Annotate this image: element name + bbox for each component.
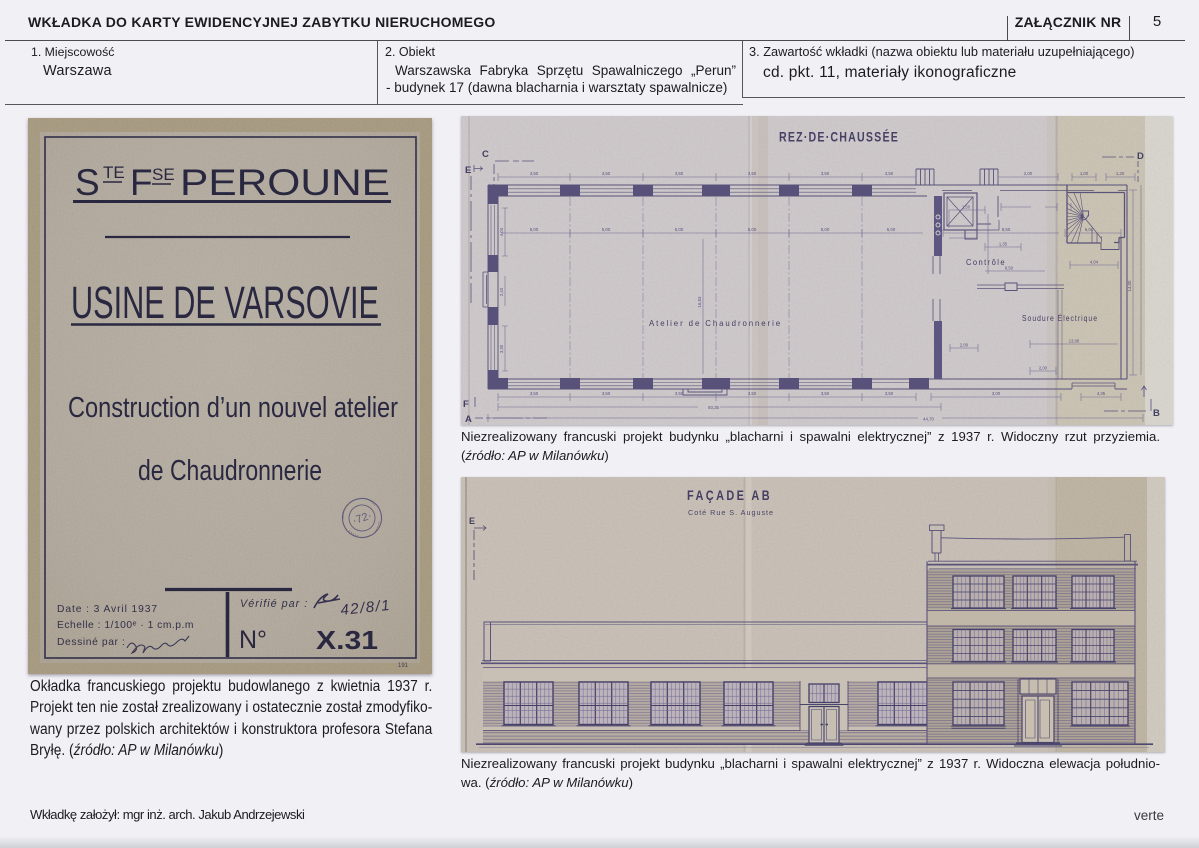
svg-text:PEROUNE: PEROUNE [180,162,390,203]
svg-text:3,50: 3,50 [530,391,539,396]
svg-text:D: D [1137,151,1144,162]
svg-text:4,04: 4,04 [499,227,504,236]
svg-text:3,30: 3,30 [499,344,504,353]
svg-text:5,00: 5,00 [887,227,896,232]
svg-text:FAÇADE AB: FAÇADE AB [687,488,772,503]
svg-text:E: E [465,165,471,176]
svg-text:F: F [463,399,469,410]
svg-text:3,50: 3,50 [602,391,611,396]
svg-text:191: 191 [398,663,409,669]
svg-text:1,50: 1,50 [962,205,971,210]
svg-text:5,00: 5,00 [675,227,684,232]
svg-text:3,50: 3,50 [675,171,684,176]
svg-text:3,50: 3,50 [675,391,684,396]
svg-text:3,50: 3,50 [885,391,894,396]
svg-text:1,35: 1,35 [999,242,1008,247]
svg-text:TE: TE [103,163,125,182]
svg-text:3,50: 3,50 [602,171,611,176]
svg-text:2,00: 2,00 [1039,366,1048,371]
svg-text:E: E [469,516,475,526]
svg-text:16,53: 16,53 [697,296,702,308]
svg-text:A: A [465,414,472,425]
svg-text:2,40: 2,40 [499,287,504,296]
svg-text:3,50: 3,50 [885,171,894,176]
svg-text:SE: SE [152,165,175,184]
svg-text:USINE DE VARSOVIE: USINE DE VARSOVIE [71,277,379,328]
svg-text:S: S [75,162,100,203]
svg-text:4,35: 4,35 [1097,391,1106,396]
svg-text:Coté Rue S. Auguste: Coté Rue S. Auguste [688,508,774,517]
svg-text:de Chaudronnerie: de Chaudronnerie [138,455,322,487]
svg-text:5,00: 5,00 [821,227,830,232]
svg-text:3,50: 3,50 [821,171,830,176]
svg-text:N°: N° [239,626,267,654]
svg-text:5,00: 5,00 [602,227,611,232]
svg-text:44,70: 44,70 [923,417,935,422]
svg-text:Dessiné par :: Dessiné par : [57,637,125,648]
svg-text:Vérifié par :: Vérifié par : [240,598,308,610]
svg-text:3,00: 3,00 [992,391,1001,396]
svg-text:C: C [482,149,489,160]
svg-text:Soudure Électrique: Soudure Électrique [1022,314,1098,323]
svg-text:3,50: 3,50 [748,171,757,176]
svg-text:REZ·DE·CHAUSSÉE: REZ·DE·CHAUSSÉE [779,130,899,145]
svg-text:3,50: 3,50 [748,391,757,396]
svg-text:1,00: 1,00 [1080,171,1089,176]
svg-text:2,00: 2,00 [1024,171,1033,176]
svg-text:Date : 3 Avril 1937: Date : 3 Avril 1937 [57,604,158,615]
svg-text:8,50: 8,50 [1005,266,1014,271]
svg-text:Atelier de Chaudronnerie: Atelier de Chaudronnerie [649,319,782,328]
svg-text:4,04: 4,04 [1090,260,1099,265]
svg-text:2,00: 2,00 [960,343,969,348]
svg-text:B: B [1153,408,1160,419]
svg-text:13,00: 13,00 [1069,339,1080,344]
svg-text:Contrôle: Contrôle [966,258,1006,267]
svg-text:3,50: 3,50 [821,391,830,396]
svg-text:F: F [130,162,153,203]
svg-text:3,50: 3,50 [530,171,539,176]
svg-text:14,00: 14,00 [1127,280,1132,292]
svg-text:50,35: 50,35 [708,405,720,410]
svg-text:8,50: 8,50 [1002,227,1011,232]
svg-text:Echelle : 1/100ᵉ · 1 cm.p.m: Echelle : 1/100ᵉ · 1 cm.p.m [57,620,194,631]
svg-text:5,00: 5,00 [748,227,757,232]
svg-text:1,20: 1,20 [1116,171,1125,176]
svg-text:5,00: 5,00 [530,227,539,232]
svg-text:Construction d’un nouvel ateli: Construction d’un nouvel atelier [68,392,398,424]
svg-text:X.31: X.31 [316,625,378,655]
